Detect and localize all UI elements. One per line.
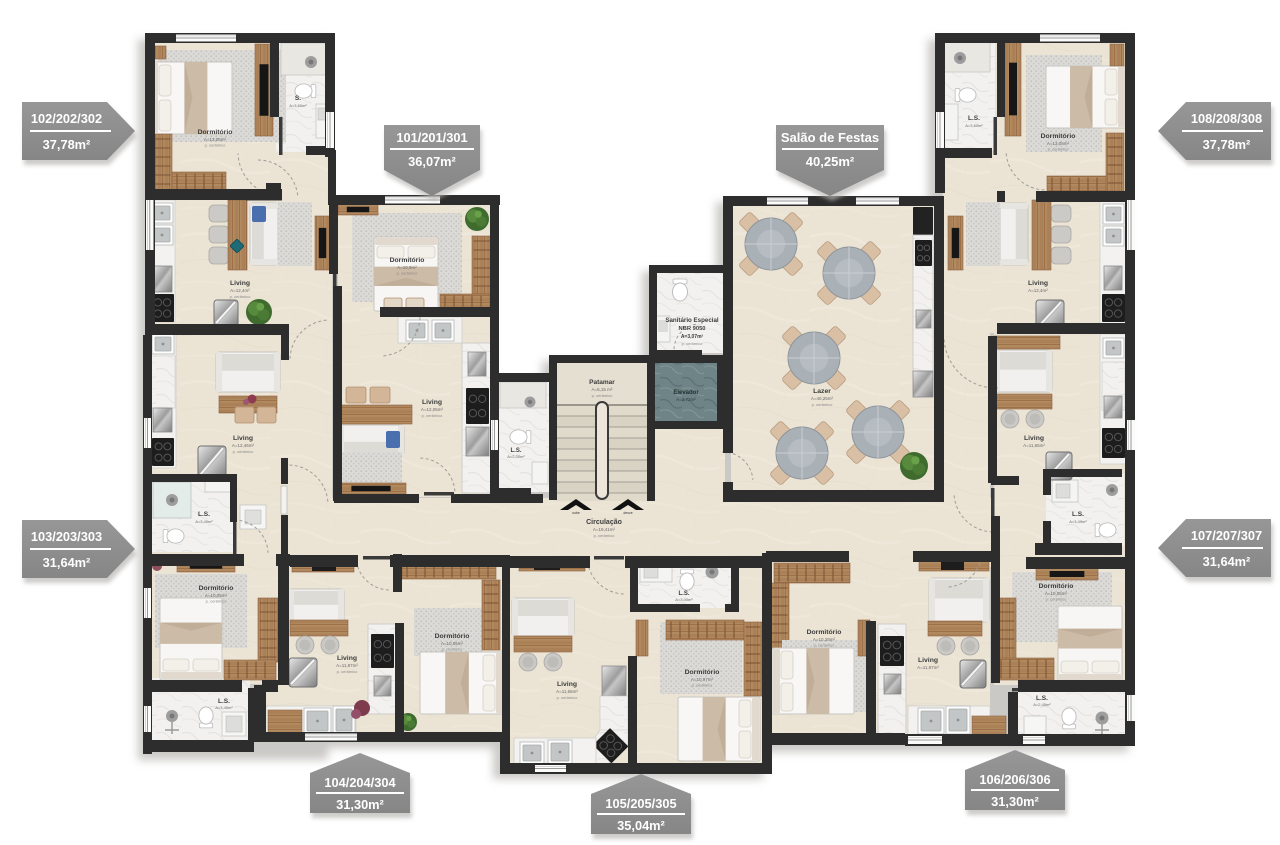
svg-text:p. cerâmico: p. cerâmico: [1046, 597, 1067, 602]
svg-text:p. cerâmico: p. cerâmico: [397, 271, 418, 276]
svg-text:p. cerâmico: p. cerâmico: [814, 643, 835, 648]
svg-text:A=13,05m²: A=13,05m²: [1047, 141, 1070, 146]
svg-text:p. cerâmico: p. cerâmico: [592, 393, 613, 398]
svg-text:Dormitório: Dormitório: [390, 257, 425, 264]
svg-text:A=10,97m²: A=10,97m²: [691, 677, 714, 682]
svg-text:A=3,00m²: A=3,00m²: [675, 597, 693, 602]
svg-text:Dormitório: Dormitório: [807, 629, 842, 636]
svg-text:p. cerâmico: p. cerâmico: [594, 533, 615, 538]
svg-text:A=12,05m²: A=12,05m²: [421, 407, 444, 412]
svg-text:Living: Living: [1028, 280, 1048, 287]
svg-text:L.S.: L.S.: [1036, 695, 1048, 702]
svg-text:A=19,41m²: A=19,41m²: [593, 527, 616, 532]
svg-text:S.: S.: [295, 95, 301, 102]
svg-text:A=3,60m²: A=3,60m²: [965, 123, 983, 128]
svg-text:101/201/301: 101/201/301: [396, 130, 467, 145]
svg-text:103/203/303: 103/203/303: [31, 529, 102, 544]
svg-text:A=11,87m²: A=11,87m²: [336, 663, 358, 668]
svg-text:A=11,65m²: A=11,65m²: [1023, 443, 1045, 448]
svg-text:p. cerâmico: p. cerâmico: [206, 599, 227, 604]
svg-text:A=3,07m²: A=3,07m²: [681, 334, 704, 340]
svg-text:108/208/308: 108/208/308: [1191, 111, 1262, 126]
svg-text:A=40,25m²: A=40,25m²: [811, 396, 834, 401]
svg-text:A=3,40m²: A=3,40m²: [195, 519, 213, 524]
svg-text:Circulação: Circulação: [586, 519, 622, 526]
svg-text:p. cerâmico: p. cerâmico: [422, 413, 443, 418]
svg-text:p. cerâmico: p. cerâmico: [442, 647, 463, 652]
svg-text:Living: Living: [557, 681, 577, 688]
svg-text:NBR 9050: NBR 9050: [678, 326, 705, 332]
svg-text:L.S.: L.S.: [218, 698, 230, 705]
svg-text:A=10,05m²: A=10,05m²: [441, 641, 464, 646]
svg-text:A=2,45m²: A=2,45m²: [1033, 702, 1051, 707]
svg-text:A=11,65m²: A=11,65m²: [556, 689, 578, 694]
svg-text:35,04m²: 35,04m²: [617, 818, 665, 833]
svg-text:p. cerâmico: p. cerâmico: [557, 695, 578, 700]
svg-text:Lazer: Lazer: [813, 388, 831, 395]
svg-text:Dormitório: Dormitório: [198, 129, 233, 136]
svg-text:Living: Living: [233, 435, 253, 442]
svg-text:sobe: sobe: [572, 511, 580, 515]
svg-text:Elevador: Elevador: [673, 390, 699, 396]
svg-text:Salão de Festas: Salão de Festas: [781, 130, 879, 145]
svg-text:L.S.: L.S.: [198, 511, 210, 518]
svg-text:Dormitório: Dormitório: [1039, 583, 1074, 590]
svg-text:A=2,00m²: A=2,00m²: [507, 454, 525, 459]
svg-text:A=2,72m²: A=2,72m²: [676, 397, 696, 402]
svg-text:A=12,4m²: A=12,4m²: [230, 288, 250, 293]
svg-text:Dormitório: Dormitório: [685, 669, 720, 676]
svg-text:37,78m²: 37,78m²: [43, 137, 91, 152]
svg-text:Dormitório: Dormitório: [199, 585, 234, 592]
svg-text:Dormitório: Dormitório: [1041, 133, 1076, 140]
svg-text:104/204/304: 104/204/304: [324, 775, 396, 790]
svg-text:A=10,05m²: A=10,05m²: [205, 593, 228, 598]
svg-text:p. cerâmico: p. cerâmico: [812, 402, 833, 407]
svg-text:p. cerâmico: p. cerâmico: [1048, 147, 1069, 152]
svg-text:A=11,87m²: A=11,87m²: [917, 665, 939, 670]
svg-text:A=3,49m²: A=3,49m²: [1069, 519, 1087, 524]
svg-text:A=13,05m²: A=13,05m²: [204, 137, 227, 142]
svg-text:A=3,60m²: A=3,60m²: [289, 103, 307, 108]
svg-text:Living: Living: [1024, 435, 1044, 442]
svg-text:p. cerâmico: p. cerâmico: [692, 683, 713, 688]
svg-text:Living: Living: [337, 655, 357, 662]
svg-text:p. cerâmico: p. cerâmico: [682, 341, 703, 346]
svg-text:Dormitório: Dormitório: [435, 633, 470, 640]
svg-text:A=10,9m²: A=10,9m²: [397, 265, 417, 270]
svg-text:p. cerâmico: p. cerâmico: [205, 143, 226, 148]
svg-text:106/206/306: 106/206/306: [979, 772, 1050, 787]
svg-text:31,30m²: 31,30m²: [991, 794, 1039, 809]
svg-text:A=10,05m²: A=10,05m²: [1045, 591, 1068, 596]
svg-text:36,07m²: 36,07m²: [408, 154, 456, 169]
svg-text:L.S.: L.S.: [968, 115, 980, 122]
svg-text:Living: Living: [918, 657, 938, 664]
svg-text:37,78m²: 37,78m²: [1203, 137, 1251, 152]
svg-text:31,30m²: 31,30m²: [336, 797, 384, 812]
svg-text:A=3,45m²: A=3,45m²: [215, 705, 233, 710]
svg-text:105/205/305: 105/205/305: [605, 796, 676, 811]
svg-text:p. cerâmico: p. cerâmico: [233, 449, 254, 454]
svg-text:desce: desce: [623, 511, 632, 515]
svg-text:107/207/307: 107/207/307: [1191, 528, 1262, 543]
svg-text:L.S.: L.S.: [1072, 511, 1084, 518]
svg-text:40,25m²: 40,25m²: [806, 154, 855, 169]
svg-text:Living: Living: [422, 399, 442, 406]
svg-text:Sanitário Especial: Sanitário Especial: [665, 317, 719, 324]
svg-text:A=12,4m²: A=12,4m²: [1028, 288, 1048, 293]
svg-text:Patamar: Patamar: [589, 379, 615, 386]
svg-text:A=5,15 m²: A=5,15 m²: [592, 387, 613, 392]
svg-text:31,64m²: 31,64m²: [1203, 554, 1251, 569]
svg-text:p. cerâmico: p. cerâmico: [230, 294, 251, 299]
svg-text:A=12,46m²: A=12,46m²: [232, 443, 255, 448]
svg-text:Living: Living: [230, 280, 250, 287]
svg-text:A=10,28m²: A=10,28m²: [813, 637, 836, 642]
svg-text:31,64m²: 31,64m²: [43, 555, 91, 570]
svg-text:102/202/302: 102/202/302: [31, 111, 102, 126]
svg-text:p. cerâmico: p. cerâmico: [337, 669, 358, 674]
